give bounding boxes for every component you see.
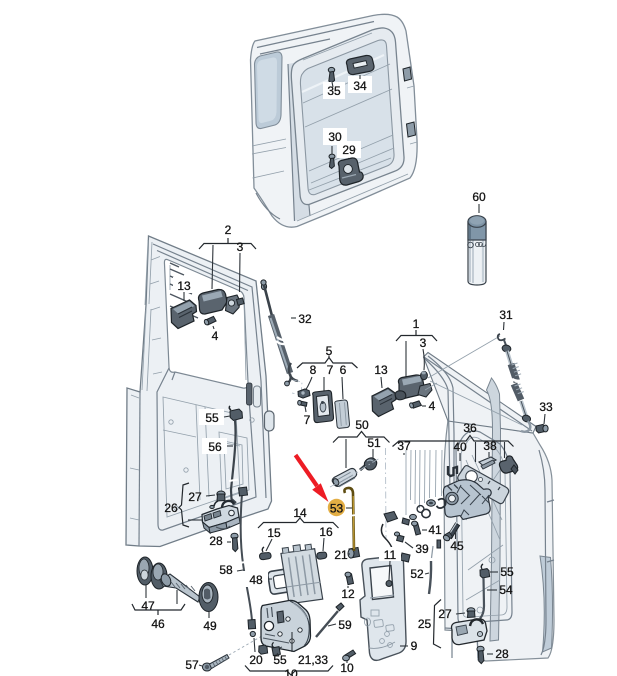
svg-text:28: 28 bbox=[495, 647, 509, 661]
svg-text:49: 49 bbox=[203, 619, 217, 633]
svg-text:35: 35 bbox=[327, 84, 341, 98]
svg-text:4: 4 bbox=[429, 399, 436, 413]
svg-text:3: 3 bbox=[237, 240, 244, 254]
svg-text:7: 7 bbox=[304, 413, 311, 427]
svg-text:21: 21 bbox=[334, 548, 348, 562]
svg-text:46: 46 bbox=[151, 617, 165, 631]
svg-text:16: 16 bbox=[319, 525, 333, 539]
svg-text:56: 56 bbox=[208, 440, 222, 454]
svg-text:26: 26 bbox=[164, 501, 178, 515]
svg-text:13: 13 bbox=[177, 279, 191, 293]
svg-text:1: 1 bbox=[413, 317, 420, 331]
svg-text:6: 6 bbox=[340, 363, 347, 377]
svg-text:2: 2 bbox=[225, 223, 232, 237]
svg-text:32: 32 bbox=[298, 312, 312, 326]
svg-text:58: 58 bbox=[219, 563, 233, 577]
svg-text:54: 54 bbox=[499, 583, 513, 597]
svg-text:51: 51 bbox=[367, 436, 381, 450]
svg-text:5: 5 bbox=[326, 344, 333, 358]
svg-text:57: 57 bbox=[185, 658, 199, 672]
svg-text:50: 50 bbox=[355, 418, 369, 432]
svg-text:20: 20 bbox=[249, 653, 263, 667]
svg-text:7: 7 bbox=[327, 363, 334, 377]
svg-text:21,33: 21,33 bbox=[298, 653, 328, 667]
svg-text:41: 41 bbox=[428, 523, 442, 537]
svg-text:31: 31 bbox=[499, 308, 513, 322]
svg-text:27: 27 bbox=[438, 607, 452, 621]
svg-text:25: 25 bbox=[418, 617, 432, 631]
svg-text:36: 36 bbox=[463, 421, 477, 435]
svg-text:33: 33 bbox=[539, 400, 553, 414]
svg-text:37: 37 bbox=[397, 439, 411, 453]
svg-text:52: 52 bbox=[410, 567, 424, 581]
svg-text:47: 47 bbox=[141, 599, 155, 613]
svg-text:40: 40 bbox=[453, 440, 467, 454]
svg-text:3: 3 bbox=[420, 336, 427, 350]
svg-text:29: 29 bbox=[342, 143, 356, 157]
svg-text:4: 4 bbox=[212, 329, 219, 343]
svg-text:59: 59 bbox=[338, 618, 352, 632]
svg-text:53: 53 bbox=[330, 502, 344, 516]
svg-text:12: 12 bbox=[341, 587, 355, 601]
svg-text:55: 55 bbox=[205, 411, 219, 425]
svg-text:55: 55 bbox=[500, 565, 514, 579]
svg-text:14: 14 bbox=[293, 506, 307, 520]
svg-text:55: 55 bbox=[273, 653, 287, 667]
svg-text:15: 15 bbox=[267, 526, 281, 540]
svg-text:10: 10 bbox=[340, 661, 354, 675]
svg-text:38: 38 bbox=[483, 439, 497, 453]
svg-text:11: 11 bbox=[384, 548, 397, 562]
svg-text:28: 28 bbox=[209, 534, 223, 548]
svg-text:13: 13 bbox=[374, 363, 388, 377]
svg-text:27: 27 bbox=[188, 490, 202, 504]
svg-text:48: 48 bbox=[249, 573, 263, 587]
svg-text:10: 10 bbox=[284, 667, 298, 676]
svg-text:8: 8 bbox=[310, 363, 317, 377]
svg-text:60: 60 bbox=[472, 190, 486, 204]
svg-text:45: 45 bbox=[450, 539, 464, 553]
svg-text:9: 9 bbox=[411, 639, 418, 653]
svg-text:39: 39 bbox=[415, 542, 429, 556]
svg-text:34: 34 bbox=[353, 79, 367, 93]
